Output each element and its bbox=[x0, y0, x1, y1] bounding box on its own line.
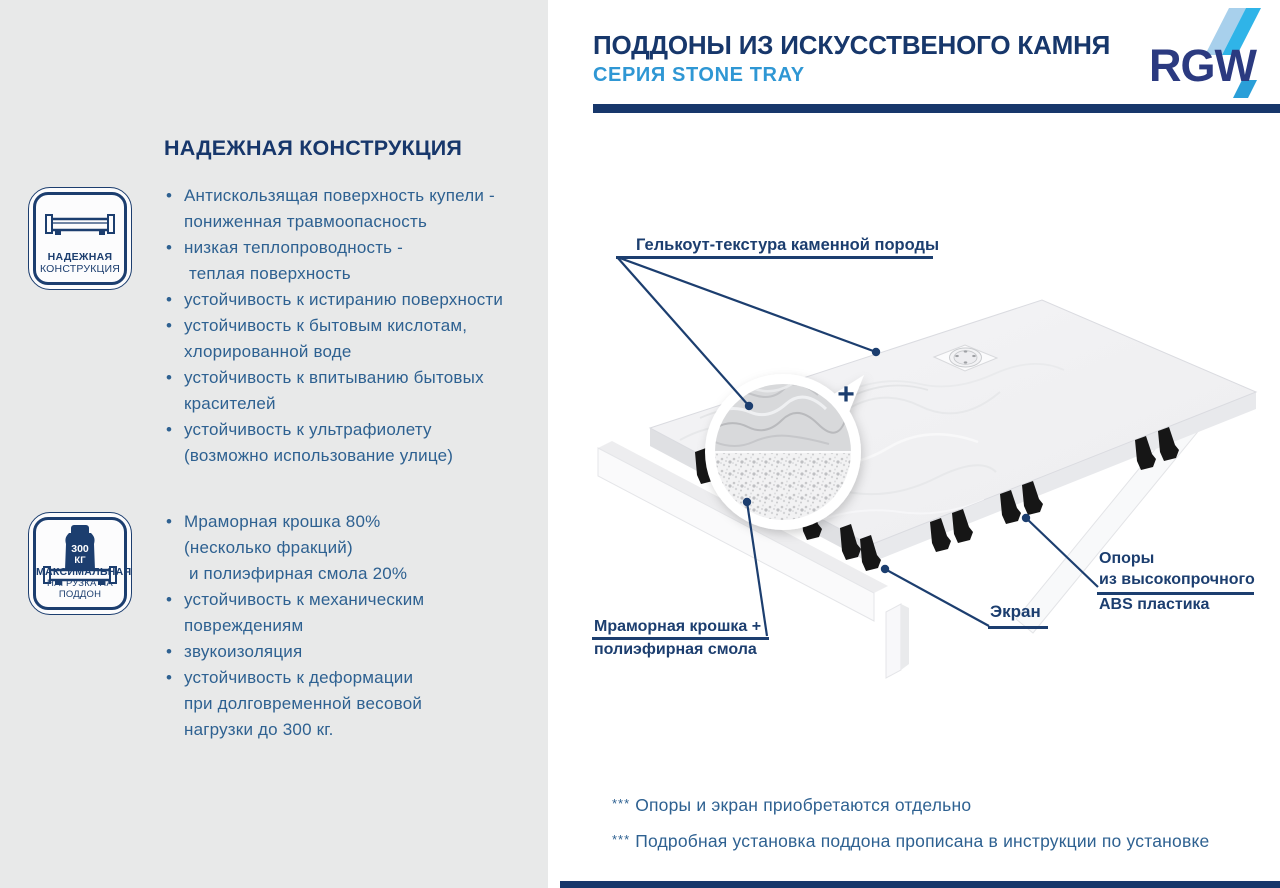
feature-line: нагрузки до 300 кг. bbox=[184, 717, 422, 743]
tray-exploded-diagram: + bbox=[548, 128, 1280, 788]
bottom-divider-bar bbox=[560, 881, 1280, 888]
feature-line: (несколько фракций) bbox=[184, 535, 407, 561]
feature-line: устойчивость к ультрафиолету bbox=[184, 417, 453, 443]
footnote-text: Опоры и экран приобретаются отдельно bbox=[635, 795, 971, 815]
weight-value-label: 300 bbox=[71, 543, 89, 555]
bullet-icon: • bbox=[166, 587, 184, 639]
plus-icon: + bbox=[837, 378, 855, 411]
feature-line: красителей bbox=[184, 391, 484, 417]
max-load-badge-frame: 300 КГ МАКСИМАЛЬНАЯ НАГРУЗКА НА ПОДДОН bbox=[33, 517, 127, 610]
feature-item: •звукоизоляция bbox=[166, 639, 538, 665]
features-list-material: •Мраморная крошка 80%(несколько фракций)… bbox=[166, 509, 538, 743]
feature-line: устойчивость к бытовым кислотам, bbox=[184, 313, 467, 339]
screen-label-underline bbox=[988, 626, 1048, 629]
footnote-marker: *** bbox=[612, 832, 630, 847]
badge-caption-line: МАКСИМАЛЬНАЯ bbox=[36, 566, 124, 578]
feature-line: и полиэфирная смола 20% bbox=[184, 561, 407, 587]
marble-label-line2: полиэфирная смола bbox=[594, 641, 757, 659]
feature-line: пониженная травмоопасность bbox=[184, 209, 495, 235]
page-subtitle: СЕРИЯ STONE TRAY bbox=[593, 64, 805, 87]
feature-item: •устойчивость к деформациипри долговреме… bbox=[166, 665, 538, 743]
footnote: ***Подробная установка поддона прописана… bbox=[612, 831, 1209, 852]
feature-line: хлорированной воде bbox=[184, 339, 467, 365]
feature-item: •устойчивость к впитыванию бытовыхкрасит… bbox=[166, 365, 538, 417]
gelcoat-label-underline bbox=[616, 256, 933, 259]
bullet-icon: • bbox=[166, 313, 184, 365]
feature-line: теплая поверхность bbox=[184, 261, 403, 287]
features-list-surface: •Антискользящая поверхность купели -пони… bbox=[166, 183, 538, 469]
badge-caption-line: КОНСТРУКЦИЯ bbox=[36, 263, 124, 275]
rgw-logo-graphic: RGW bbox=[1145, 5, 1275, 100]
feature-item: •низкая теплопроводность - теплая поверх… bbox=[166, 235, 538, 287]
feature-line: устойчивость к впитыванию бытовых bbox=[184, 365, 484, 391]
footnote: ***Опоры и экран приобретаются отдельно bbox=[612, 795, 971, 816]
feature-line: звукоизоляция bbox=[184, 639, 302, 665]
footnote-marker: *** bbox=[612, 796, 630, 811]
supports-label-line3: ABS пластика bbox=[1099, 596, 1209, 614]
construction-badge: НАДЕЖНАЯ КОНСТРУКЦИЯ bbox=[28, 187, 132, 290]
feature-item: •Антискользящая поверхность купели -пони… bbox=[166, 183, 538, 235]
marble-label-underline bbox=[592, 637, 769, 640]
badge-caption-line: НАГРУЗКА НА ПОДДОН bbox=[36, 578, 124, 600]
feature-item: •Мраморная крошка 80%(несколько фракций)… bbox=[166, 509, 538, 587]
feature-line: устойчивость к деформации bbox=[184, 665, 422, 691]
feature-line: устойчивость к механическим bbox=[184, 587, 424, 613]
feature-line: повреждениям bbox=[184, 613, 424, 639]
feature-line: при долговременной весовой bbox=[184, 691, 422, 717]
gelcoat-label: Гелькоут-текстура каменной породы bbox=[636, 236, 939, 255]
top-divider-bar bbox=[593, 104, 1280, 113]
max-load-badge-caption: МАКСИМАЛЬНАЯ НАГРУЗКА НА ПОДДОН bbox=[36, 566, 124, 600]
max-load-badge: 300 КГ МАКСИМАЛЬНАЯ НАГРУЗКА НА ПОДДОН bbox=[28, 512, 132, 615]
supports-label-underline bbox=[1097, 592, 1254, 595]
rgw-logo-text: RGW bbox=[1149, 40, 1258, 91]
page-title: ПОДДОНЫ ИЗ ИСКУССТВЕНОГО КАМНЯ bbox=[593, 30, 1110, 61]
screen-corner-piece bbox=[886, 604, 909, 678]
bullet-icon: • bbox=[166, 509, 184, 587]
tray-cross-section-icon bbox=[43, 211, 117, 245]
bullet-icon: • bbox=[166, 365, 184, 417]
screen-label: Экран bbox=[990, 602, 1041, 622]
bullet-icon: • bbox=[166, 417, 184, 469]
badge-caption-line: НАДЕЖНАЯ bbox=[36, 251, 124, 263]
bullet-icon: • bbox=[166, 665, 184, 743]
feature-line: низкая теплопроводность - bbox=[184, 235, 403, 261]
marble-label-line1: Мраморная крошка + bbox=[594, 618, 761, 636]
feature-line: (возможно использование улице) bbox=[184, 443, 453, 469]
feature-item: •устойчивость к ультрафиолету(возможно и… bbox=[166, 417, 538, 469]
feature-item: •устойчивость к истиранию поверхности bbox=[166, 287, 538, 313]
bullet-icon: • bbox=[166, 639, 184, 665]
weight-unit-label: КГ bbox=[74, 555, 86, 566]
rgw-logo: RGW bbox=[1145, 5, 1275, 100]
supports-label-line1: Опоры bbox=[1099, 550, 1154, 568]
feature-item: •устойчивость к механическимповреждениям bbox=[166, 587, 538, 639]
construction-badge-caption: НАДЕЖНАЯ КОНСТРУКЦИЯ bbox=[36, 251, 124, 275]
feature-line: устойчивость к истиранию поверхности bbox=[184, 287, 503, 313]
feature-line: Антискользящая поверхность купели - bbox=[184, 183, 495, 209]
feature-item: •устойчивость к бытовым кислотам,хлориро… bbox=[166, 313, 538, 365]
section-heading: НАДЕЖНАЯ КОНСТРУКЦИЯ bbox=[164, 136, 462, 161]
footnote-text: Подробная установка поддона прописана в … bbox=[635, 831, 1209, 851]
feature-line: Мраморная крошка 80% bbox=[184, 509, 407, 535]
supports-label-line2: из высокопрочного bbox=[1099, 571, 1255, 589]
bullet-icon: • bbox=[166, 183, 184, 235]
construction-badge-frame: НАДЕЖНАЯ КОНСТРУКЦИЯ bbox=[33, 192, 127, 285]
bullet-icon: • bbox=[166, 287, 184, 313]
bullet-icon: • bbox=[166, 235, 184, 287]
